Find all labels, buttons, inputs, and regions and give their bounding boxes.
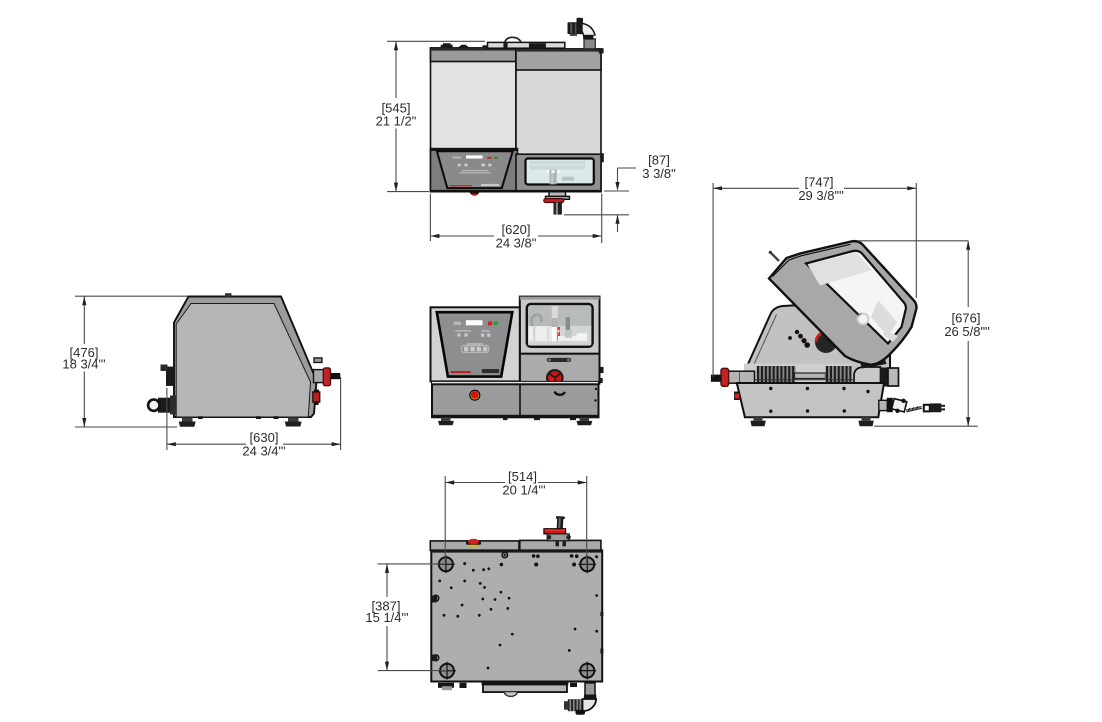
svg-text:26 5/8"": 26 5/8"": [944, 324, 990, 339]
svg-text:24 3/4"': 24 3/4"': [242, 444, 285, 459]
svg-text:18 3/4"': 18 3/4"': [62, 357, 105, 372]
svg-text:21 1/2": 21 1/2": [376, 114, 417, 129]
svg-text:29 3/8"": 29 3/8"": [798, 188, 844, 203]
svg-text:15 1/4"': 15 1/4"': [365, 610, 408, 625]
svg-text:24 3/8": 24 3/8": [496, 235, 537, 250]
svg-text:3 3/8": 3 3/8": [642, 166, 676, 181]
svg-text:20 1/4"': 20 1/4"': [502, 482, 545, 497]
